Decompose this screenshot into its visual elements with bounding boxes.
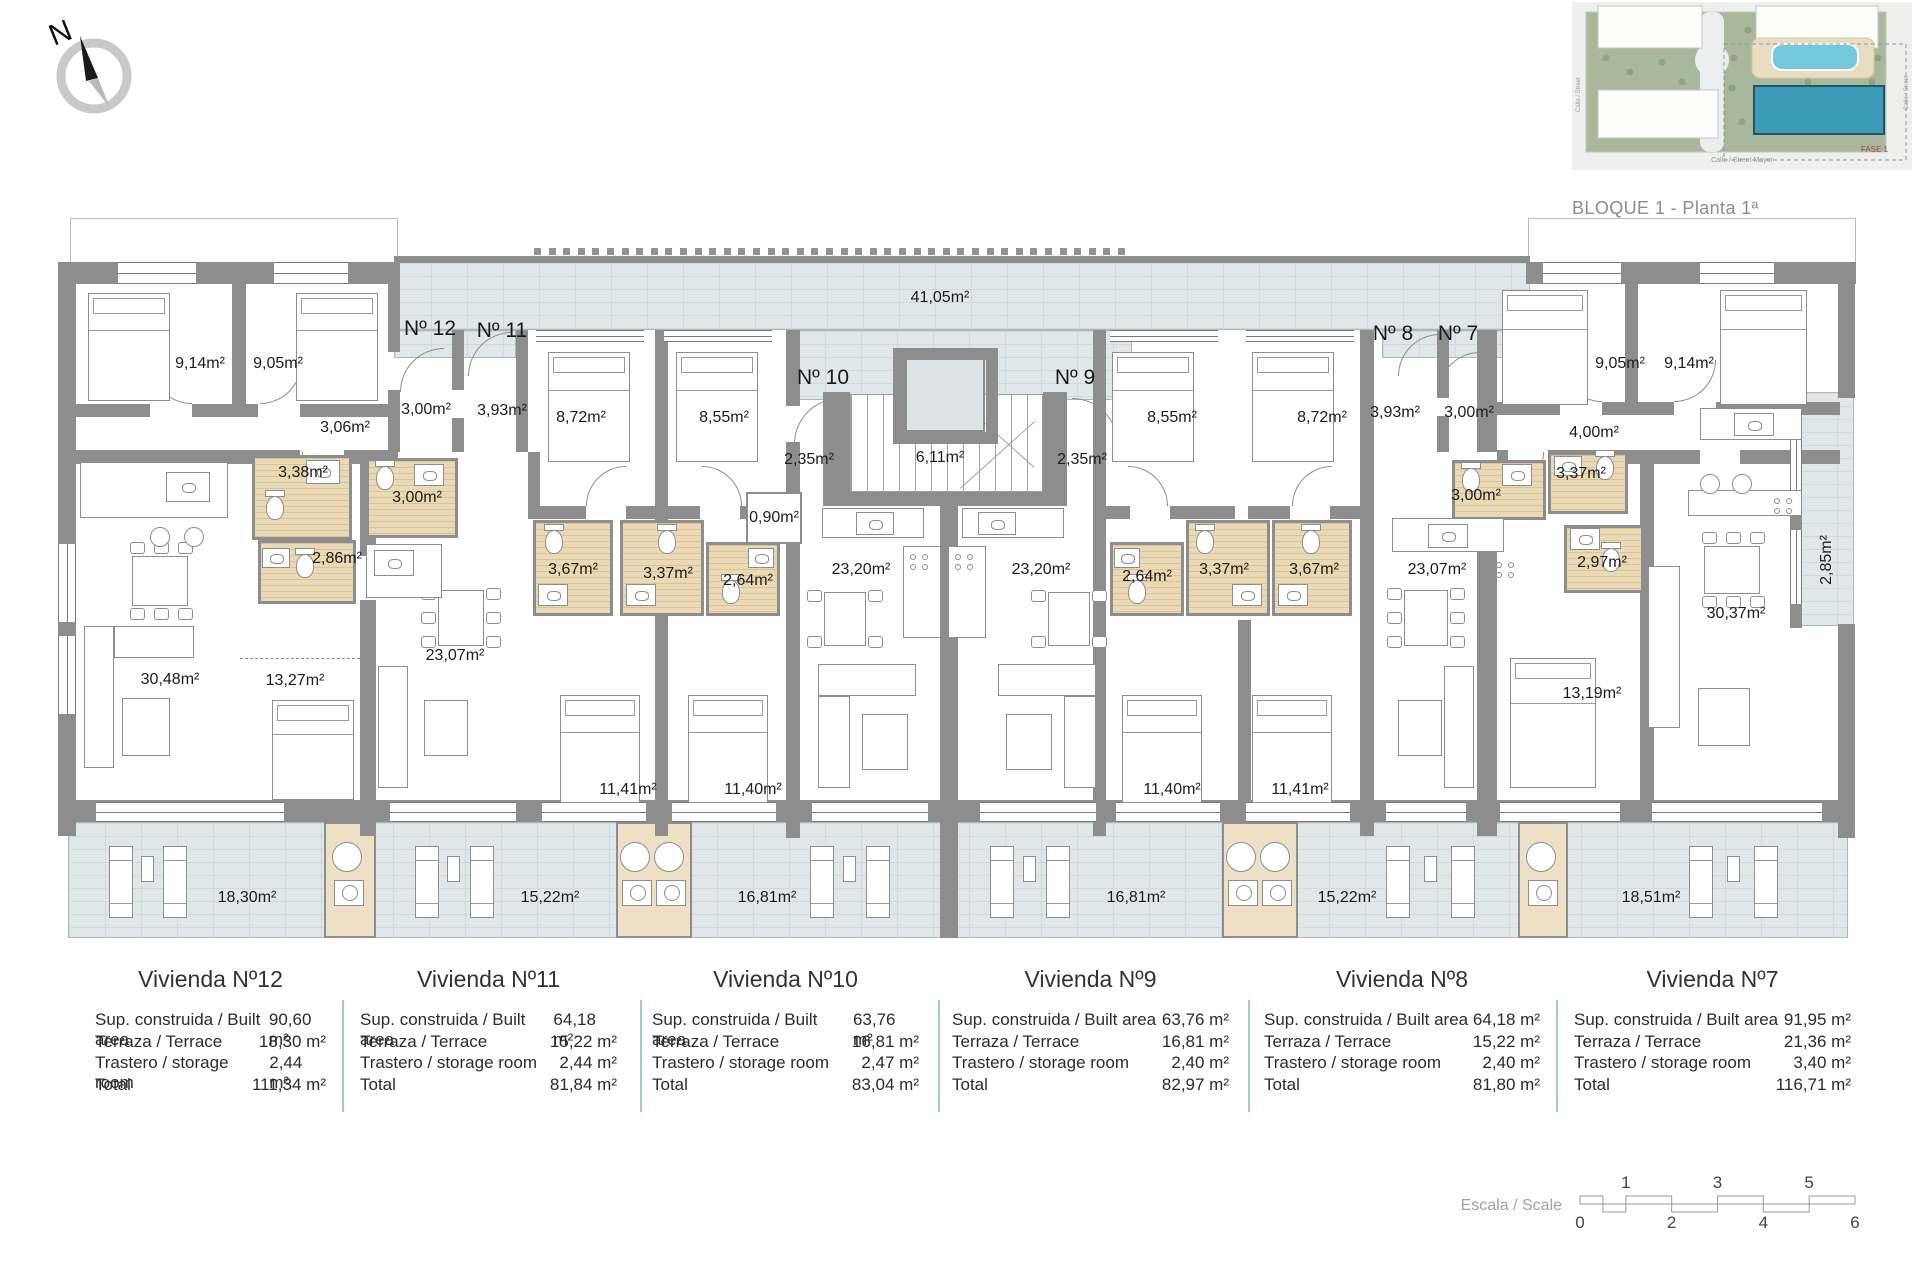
- unit-table-title: Vivienda Nº12: [95, 966, 326, 993]
- area-label: 9,14m²: [1664, 355, 1714, 373]
- area-label: 8,55m²: [699, 409, 749, 427]
- area-label: 3,37m²: [643, 565, 693, 583]
- area-label: 2,35m²: [784, 451, 834, 469]
- row-value: 15,22 m²: [550, 1032, 617, 1052]
- area-label: 3,93m²: [477, 402, 527, 420]
- area-label: 8,72m²: [1297, 409, 1347, 427]
- row-value: 15,22 m²: [1473, 1032, 1540, 1052]
- area-label: 13,27m²: [266, 672, 325, 690]
- area-label: 3,00m²: [392, 489, 442, 507]
- scale-segment: [1763, 1204, 1809, 1212]
- table-row: Terraza / Terrace18,30 m²: [95, 1032, 326, 1052]
- area-label: 2,35m²: [1057, 451, 1107, 469]
- row-label: Terraza / Terrace: [1574, 1032, 1701, 1052]
- table-row: Terraza / Terrace15,22 m²: [360, 1032, 617, 1052]
- table-divider: [1248, 1000, 1250, 1112]
- table-row: Sup. construida / Built area91,95 m²: [1574, 1010, 1851, 1030]
- row-label: Total: [1574, 1075, 1610, 1095]
- table-divider: [342, 1000, 344, 1112]
- row-value: 91,95 m²: [1784, 1010, 1851, 1030]
- area-label: 23,20m²: [832, 561, 891, 579]
- table-divider: [1556, 1000, 1558, 1112]
- table-row: Trastero / storage room2,47 m²: [652, 1053, 919, 1073]
- row-label: Trastero / storage room: [1574, 1053, 1751, 1073]
- row-label: Trastero / storage room: [1264, 1053, 1441, 1073]
- area-label: 23,07m²: [426, 647, 485, 665]
- area-label: 2,85m²: [1818, 535, 1836, 585]
- table-row: Terraza / Terrace15,22 m²: [1264, 1032, 1540, 1052]
- table-row: Trastero / storage room2,40 m²: [952, 1053, 1229, 1073]
- table-row: Terraza / Terrace16,81 m²: [952, 1032, 1229, 1052]
- area-label: 2,97m²: [1577, 554, 1627, 572]
- area-label: 11,41m²: [1271, 781, 1329, 799]
- scale-segment: [1580, 1196, 1603, 1204]
- unit-number-label: Nº 7: [1438, 322, 1478, 346]
- scale-tick: 0: [1575, 1213, 1584, 1232]
- row-value: 82,97 m²: [1162, 1075, 1229, 1095]
- row-label: Total: [95, 1075, 131, 1095]
- area-label: 9,05m²: [253, 355, 303, 373]
- scale-tick: 1: [1621, 1173, 1630, 1192]
- row-label: Total: [360, 1075, 396, 1095]
- unit-table-title: Vivienda Nº11: [360, 966, 617, 993]
- unit-table-title: Vivienda Nº7: [1574, 966, 1851, 993]
- row-label: Terraza / Terrace: [1264, 1032, 1391, 1052]
- row-label: Sup. construida / Built area: [1264, 1010, 1468, 1030]
- area-label: 2,64m²: [723, 572, 773, 590]
- row-value: 2,40 m²: [1482, 1053, 1540, 1073]
- unit-table-title: Vivienda Nº10: [652, 966, 919, 993]
- area-label: 30,48m²: [141, 671, 200, 689]
- row-value: 18,30 m²: [259, 1032, 326, 1052]
- table-row: Trastero / storage room2,40 m²: [1264, 1053, 1540, 1073]
- area-label: 3,37m²: [1199, 561, 1249, 579]
- row-label: Total: [952, 1075, 988, 1095]
- area-label: 23,20m²: [1012, 561, 1071, 579]
- row-label: Total: [1264, 1075, 1300, 1095]
- unit-number-label: Nº 8: [1373, 322, 1413, 346]
- floorplan-page: N Calle / Street Mayor Calle / Street Ca…: [0, 0, 1920, 1280]
- unit-number-label: Nº 12: [404, 317, 456, 341]
- area-label: 3,37m²: [1556, 465, 1606, 483]
- table-row: Total116,71 m²: [1574, 1075, 1851, 1095]
- area-label: 9,05m²: [1595, 355, 1645, 373]
- scale-segment: [1672, 1204, 1718, 1212]
- area-label: 8,72m²: [556, 409, 606, 427]
- row-label: Trastero / storage room: [360, 1053, 537, 1073]
- table-row: Total83,04 m²: [652, 1075, 919, 1095]
- area-label: 2,64m²: [1122, 568, 1172, 586]
- scale-tick: 5: [1804, 1173, 1813, 1192]
- area-label: 30,37m²: [1707, 605, 1766, 623]
- area-label: 11,41m²: [599, 781, 657, 799]
- area-label: 9,14m²: [175, 355, 225, 373]
- row-value: 81,84 m²: [550, 1075, 617, 1095]
- table-row: Terraza / Terrace16,81 m²: [652, 1032, 919, 1052]
- unit-number-label: Nº 10: [797, 366, 849, 390]
- table-row: Total82,97 m²: [952, 1075, 1229, 1095]
- row-value: 81,80 m²: [1473, 1075, 1540, 1095]
- table-row: Sup. construida / Built area63,76 m²: [952, 1010, 1229, 1030]
- area-label: 41,05m²: [911, 289, 970, 307]
- row-value: 2,47 m²: [861, 1053, 919, 1073]
- area-label: 3,06m²: [320, 419, 370, 437]
- row-value: 64,18 m²: [1473, 1010, 1540, 1030]
- unit-table-title: Vivienda Nº8: [1264, 966, 1540, 993]
- unit-number-label: Nº 11: [477, 319, 527, 343]
- row-value: 116,71 m²: [1776, 1075, 1851, 1095]
- scale-segment: [1626, 1196, 1672, 1204]
- area-label: 6,11m²: [916, 449, 965, 467]
- area-label: 16,81m²: [738, 889, 797, 907]
- area-label: 3,00m²: [1444, 404, 1494, 422]
- area-label: 3,00m²: [401, 401, 451, 419]
- scale-segment: [1809, 1196, 1855, 1204]
- scale-segment: [1718, 1196, 1764, 1204]
- row-value: 3,40 m²: [1793, 1053, 1851, 1073]
- area-label: 15,22m²: [1318, 889, 1377, 907]
- area-label: 0,90m²: [749, 509, 799, 527]
- table-row: Trastero / storage room3,40 m²: [1574, 1053, 1851, 1073]
- area-label: 11,40m²: [724, 781, 782, 799]
- scale-segment: [1603, 1204, 1626, 1212]
- row-label: Sup. construida / Built area: [952, 1010, 1156, 1030]
- row-label: Sup. construida / Built area: [1574, 1010, 1778, 1030]
- unit-summary-tables: Vivienda Nº12Sup. construida / Built are…: [0, 0, 1920, 1280]
- area-label: 23,07m²: [1408, 561, 1467, 579]
- area-label: 8,55m²: [1147, 409, 1197, 427]
- area-label: 4,00m²: [1569, 424, 1619, 442]
- table-row: Total81,80 m²: [1264, 1075, 1540, 1095]
- table-row: Total81,84 m²: [360, 1075, 617, 1095]
- table-row: Sup. construida / Built area64,18 m²: [1264, 1010, 1540, 1030]
- table-divider: [938, 1000, 940, 1112]
- area-label: 3,00m²: [1451, 487, 1501, 505]
- scale-label: Escala / Scale: [1432, 1197, 1562, 1215]
- row-label: Terraza / Terrace: [95, 1032, 222, 1052]
- row-value: 21,36 m²: [1784, 1032, 1851, 1052]
- row-value: 111,34 m²: [252, 1075, 326, 1095]
- area-label: 3,67m²: [1289, 561, 1339, 579]
- row-label: Terraza / Terrace: [652, 1032, 779, 1052]
- area-label: 13,19m²: [1563, 685, 1622, 703]
- row-label: Total: [652, 1075, 688, 1095]
- row-value: 2,44 m²: [559, 1053, 617, 1073]
- row-value: 16,81 m²: [852, 1032, 919, 1052]
- row-label: Terraza / Terrace: [360, 1032, 487, 1052]
- area-label: 18,30m²: [218, 889, 277, 907]
- scale-tick: 2: [1667, 1213, 1676, 1232]
- area-label: 3,38m²: [278, 464, 328, 482]
- unit-number-label: Nº 9: [1055, 366, 1095, 390]
- row-label: Trastero / storage room: [652, 1053, 829, 1073]
- area-label: 3,67m²: [548, 561, 598, 579]
- table-row: Total111,34 m²: [95, 1075, 326, 1095]
- row-value: 16,81 m²: [1162, 1032, 1229, 1052]
- scale-tick: 3: [1713, 1173, 1722, 1192]
- area-label: 3,93m²: [1370, 404, 1420, 422]
- area-label: 16,81m²: [1107, 889, 1166, 907]
- scale-tick: 4: [1759, 1213, 1768, 1232]
- scale-tick: 6: [1850, 1213, 1859, 1232]
- area-label: 2,86m²: [312, 550, 362, 568]
- scale-bar: 1350246: [1572, 1172, 1872, 1232]
- table-divider: [640, 1000, 642, 1112]
- row-value: 83,04 m²: [852, 1075, 919, 1095]
- unit-table-title: Vivienda Nº9: [952, 966, 1229, 993]
- row-label: Terraza / Terrace: [952, 1032, 1079, 1052]
- row-value: 2,40 m²: [1171, 1053, 1229, 1073]
- table-row: Terraza / Terrace21,36 m²: [1574, 1032, 1851, 1052]
- area-label: 11,40m²: [1143, 781, 1201, 799]
- row-value: 63,76 m²: [1162, 1010, 1229, 1030]
- table-row: Trastero / storage room2,44 m²: [360, 1053, 617, 1073]
- area-label: 15,22m²: [521, 889, 580, 907]
- row-label: Trastero / storage room: [952, 1053, 1129, 1073]
- area-label: 18,51m²: [1622, 889, 1681, 907]
